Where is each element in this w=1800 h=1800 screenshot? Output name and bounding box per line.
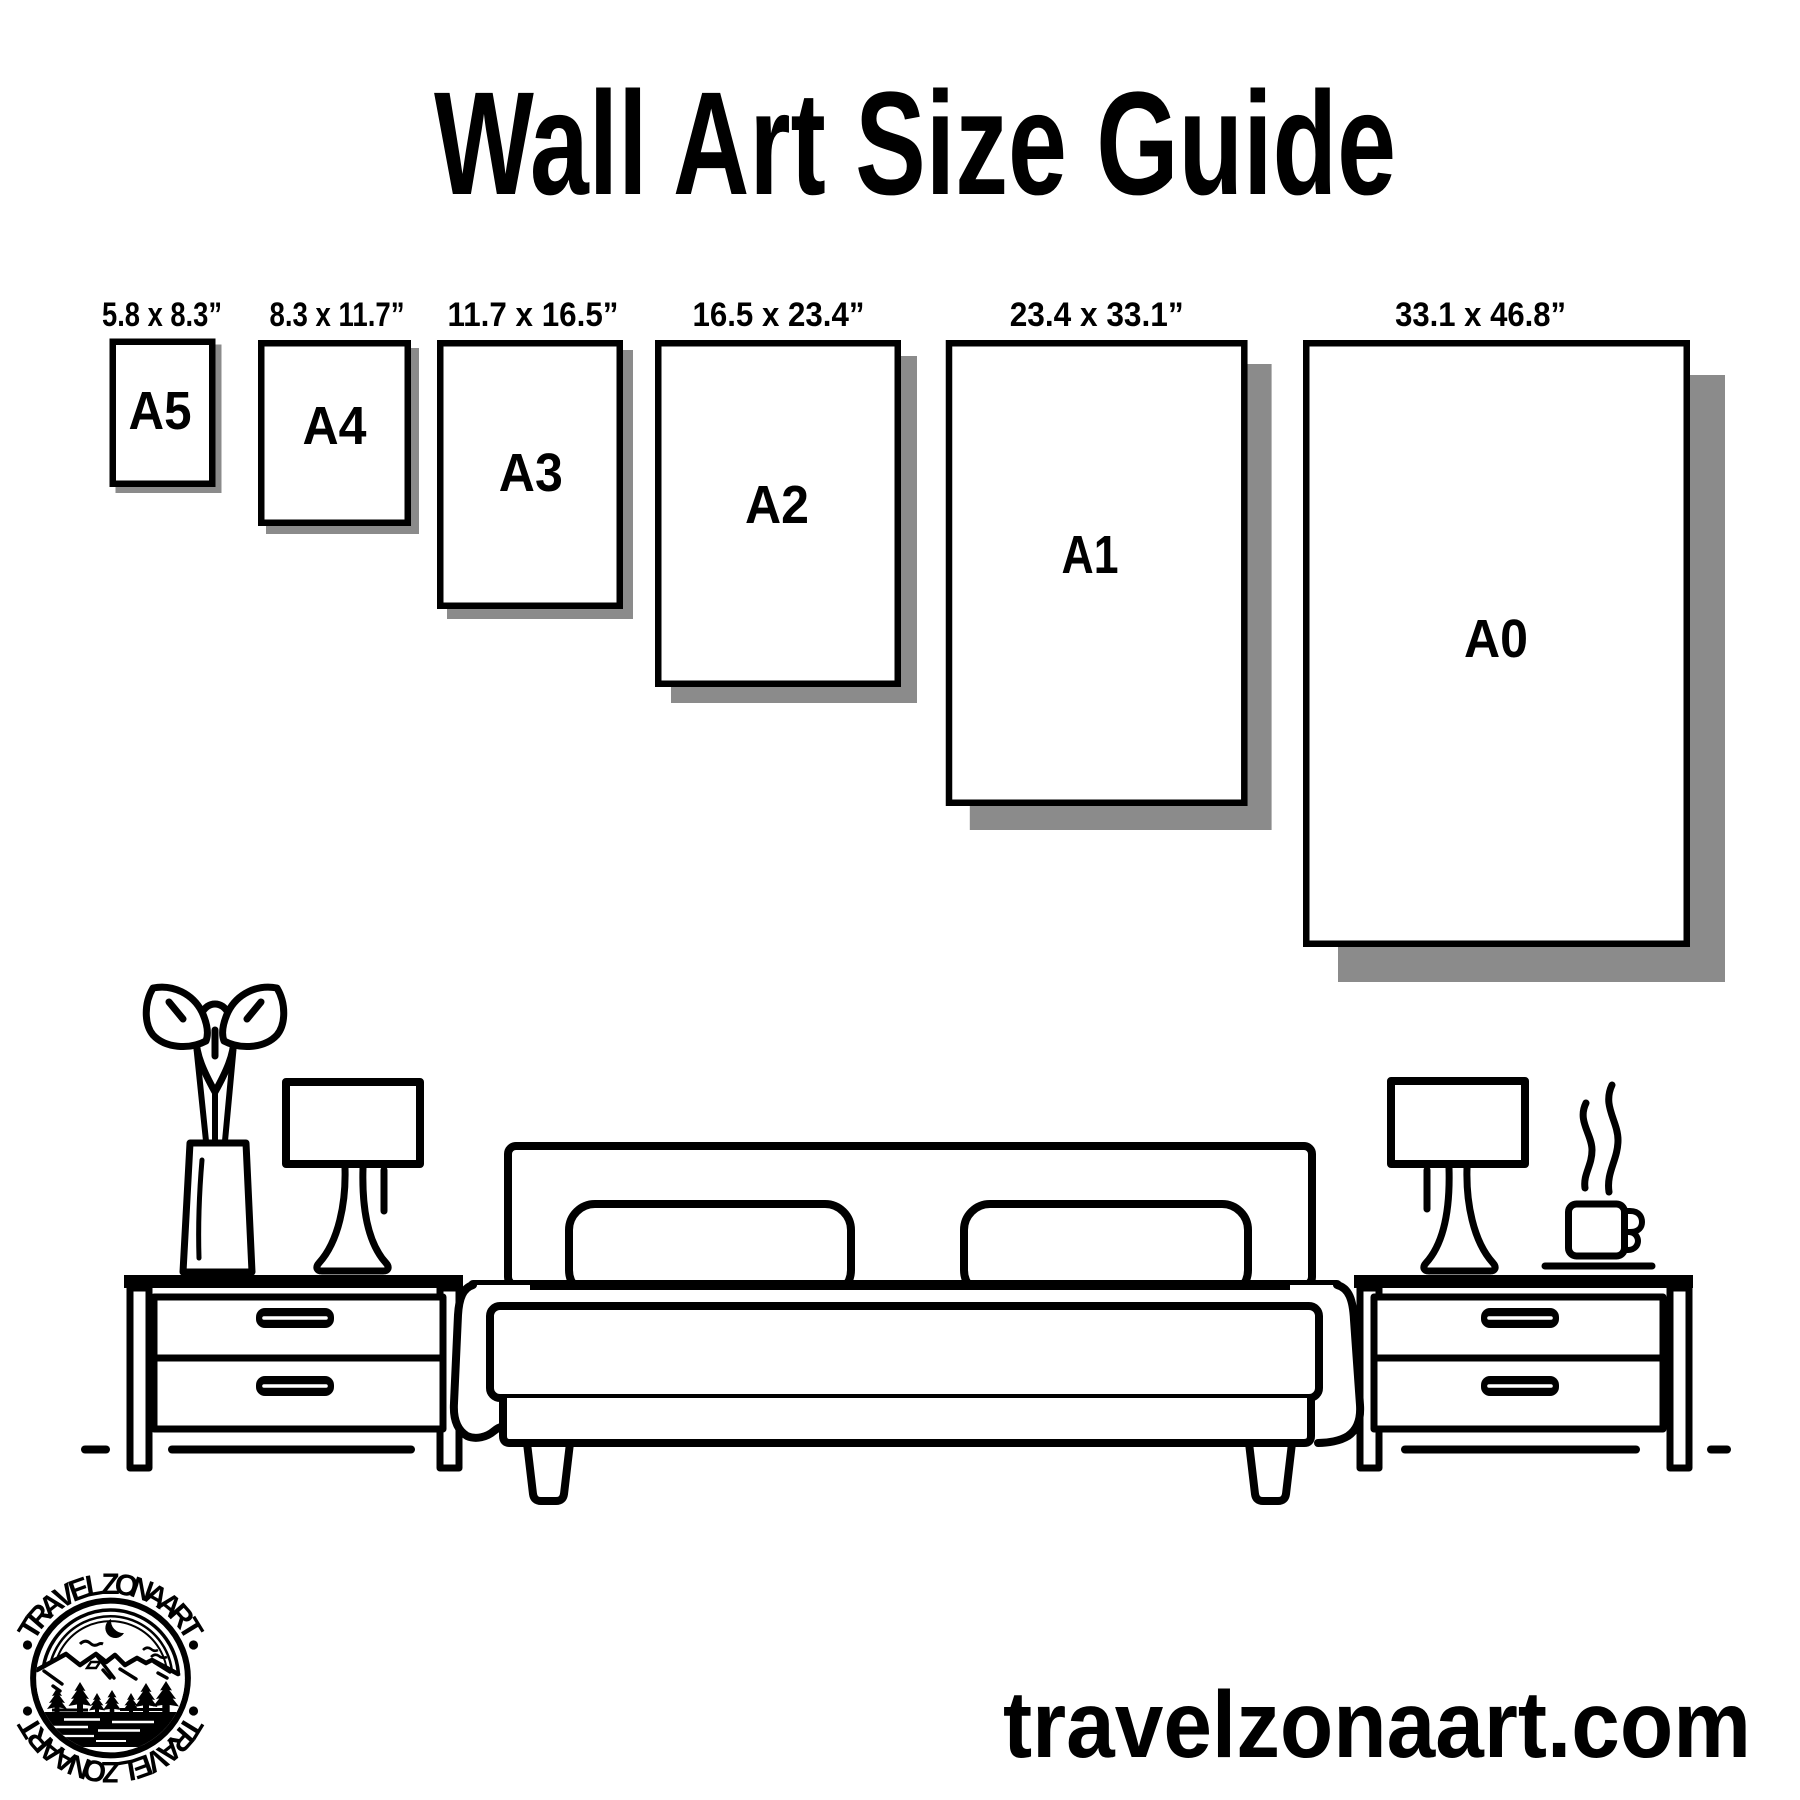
svg-text:A4: A4 xyxy=(303,396,367,456)
svg-text:A3: A3 xyxy=(499,443,563,503)
svg-text:travelzonaart.com: travelzonaart.com xyxy=(1003,1672,1751,1778)
svg-text:5.8 x 8.3”: 5.8 x 8.3” xyxy=(102,296,222,334)
svg-text:A5: A5 xyxy=(129,381,192,441)
svg-text:A1: A1 xyxy=(1062,525,1119,585)
svg-text:8.3 x 11.7”: 8.3 x 11.7” xyxy=(270,296,405,334)
svg-text:A2: A2 xyxy=(745,475,809,535)
svg-text:A0: A0 xyxy=(1464,609,1528,669)
svg-text:16.5 x 23.4”: 16.5 x 23.4” xyxy=(693,296,865,334)
svg-text:33.1 x 46.8”: 33.1 x 46.8” xyxy=(1395,296,1566,334)
svg-text:Wall Art Size Guide: Wall Art Size Guide xyxy=(434,62,1396,226)
svg-text:11.7 x 16.5”: 11.7 x 16.5” xyxy=(448,296,619,334)
svg-text:23.4 x 33.1”: 23.4 x 33.1” xyxy=(1010,296,1184,334)
